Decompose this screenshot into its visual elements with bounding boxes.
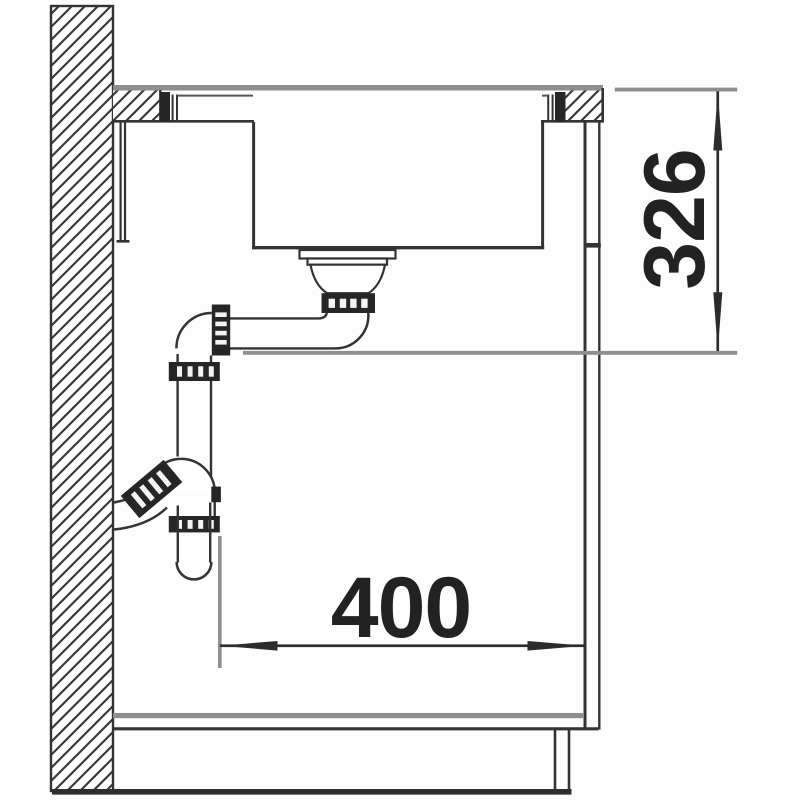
- cabinet: [52, 122, 601, 795]
- countertop-section-right-hatch: [566, 91, 604, 122]
- countertop-section-left-hatch: [113, 91, 160, 122]
- strainer-rib: [361, 299, 367, 308]
- sink-clamp-left: [160, 92, 170, 121]
- floor-line: [52, 789, 572, 795]
- nut-rib: [215, 331, 226, 336]
- cabinet-panel-joint: [584, 243, 601, 248]
- dimension-height-label: 326: [627, 149, 723, 290]
- nut-rib: [198, 366, 203, 376]
- drain-flange-plate: [300, 250, 396, 259]
- installation-diagram: 326 400: [0, 0, 800, 800]
- countertop-surface: [113, 85, 603, 91]
- siphon-trap: [114, 459, 221, 580]
- nut-rib: [215, 312, 226, 317]
- drain-assembly: [300, 250, 396, 313]
- sink-cross-section-drawing: 326 400: [0, 0, 800, 800]
- countertop: [113, 85, 604, 121]
- extension-line-top: [615, 88, 737, 92]
- nut-rib: [215, 322, 226, 327]
- extension-line-left: [218, 536, 222, 668]
- nut-rib: [177, 366, 182, 376]
- wall-batten: [117, 122, 130, 242]
- wall: [51, 6, 113, 791]
- wall-hatch: [51, 6, 113, 791]
- arrow-up-icon: [713, 92, 722, 151]
- strainer-rib: [329, 299, 335, 308]
- nut-rib: [188, 520, 193, 529]
- tailpipe: [169, 305, 369, 487]
- sink-clamp-right: [555, 92, 566, 122]
- nut-rib: [198, 520, 203, 529]
- drain-bowl: [311, 265, 386, 294]
- trap-clip: [211, 487, 221, 503]
- arrow-left-icon: [220, 641, 278, 651]
- arrow-right-icon: [528, 641, 586, 651]
- dimension-width: 400: [218, 536, 585, 668]
- pipe-nut-vertical: [212, 305, 230, 356]
- nut-rib: [209, 366, 214, 376]
- extension-line-bottom: [243, 351, 737, 355]
- outlet-inner-bend: [319, 313, 327, 319]
- dimension-width-label: 400: [331, 560, 472, 656]
- strainer-rib: [340, 299, 346, 308]
- arrow-down-icon: [713, 292, 722, 351]
- strainer-rib: [350, 299, 356, 308]
- dimension-height: 326: [243, 88, 737, 355]
- sink-rim: [160, 92, 566, 122]
- nut-rib: [188, 366, 193, 376]
- elbow-outer-bend: [176, 313, 211, 348]
- outlet-outer-bend: [335, 313, 368, 349]
- cabinet-bottom-top-surface: [113, 713, 584, 718]
- nut-rib: [215, 340, 226, 345]
- trap-cup-bottom: [177, 562, 212, 579]
- sink-basin: [252, 122, 544, 248]
